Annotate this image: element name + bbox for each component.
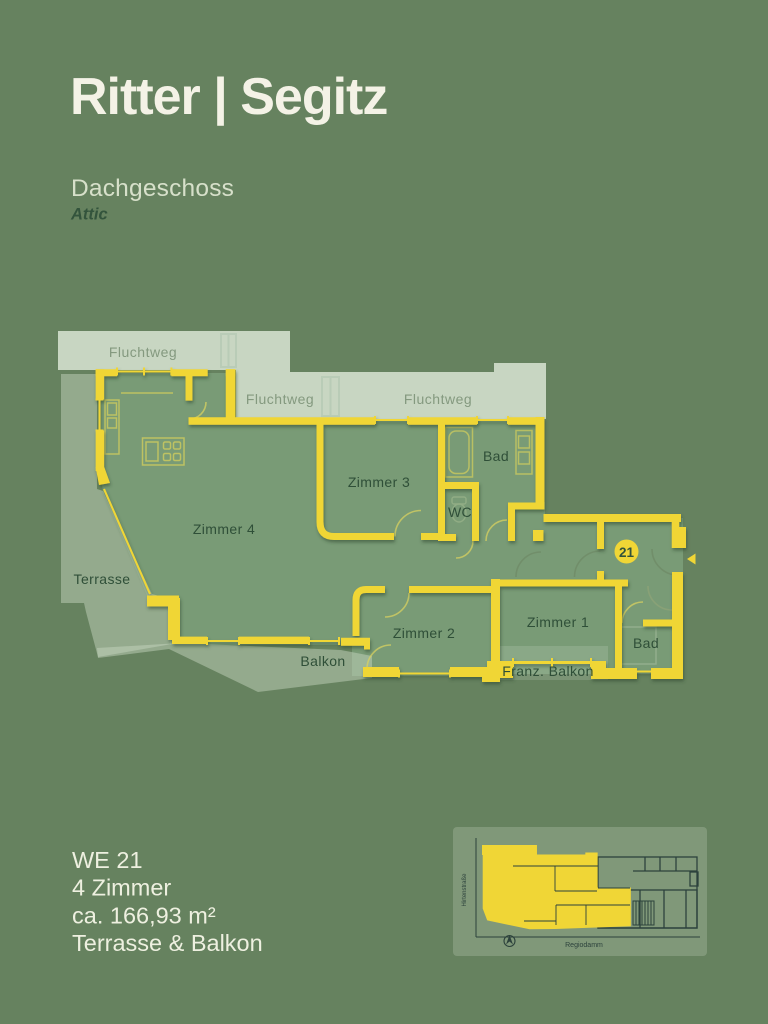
svg-text:Zimmer 4: Zimmer 4 [193,521,255,537]
svg-text:4 Zimmer: 4 Zimmer [72,875,171,901]
svg-text:Franz. Balkon: Franz. Balkon [502,663,594,679]
svg-text:Zimmer 3: Zimmer 3 [348,474,410,490]
svg-text:WE 21: WE 21 [72,847,143,873]
svg-text:21: 21 [619,545,635,560]
svg-text:Terrasse: Terrasse [74,571,131,587]
svg-text:Dachgeschoss: Dachgeschoss [71,175,234,202]
svg-text:Zimmer 2: Zimmer 2 [393,625,455,641]
svg-text:Attic: Attic [70,206,108,224]
svg-text:Fluchtweg: Fluchtweg [404,391,472,407]
svg-text:Balkon: Balkon [300,653,345,669]
svg-text:Bad: Bad [483,448,509,464]
svg-text:Fluchtweg: Fluchtweg [109,344,177,360]
svg-text:Hirtenstraße: Hirtenstraße [462,873,468,907]
svg-text:Ritter | Segitz: Ritter | Segitz [70,68,387,126]
svg-text:ca. 166,93 m²: ca. 166,93 m² [72,902,216,928]
svg-text:Zimmer 1: Zimmer 1 [527,614,589,630]
svg-text:Bad: Bad [633,635,659,651]
svg-text:Fluchtweg: Fluchtweg [246,391,314,407]
svg-text:WC: WC [448,504,472,520]
svg-text:Terrasse & Balkon: Terrasse & Balkon [72,930,263,956]
svg-text:Regiodamm: Regiodamm [565,942,603,949]
